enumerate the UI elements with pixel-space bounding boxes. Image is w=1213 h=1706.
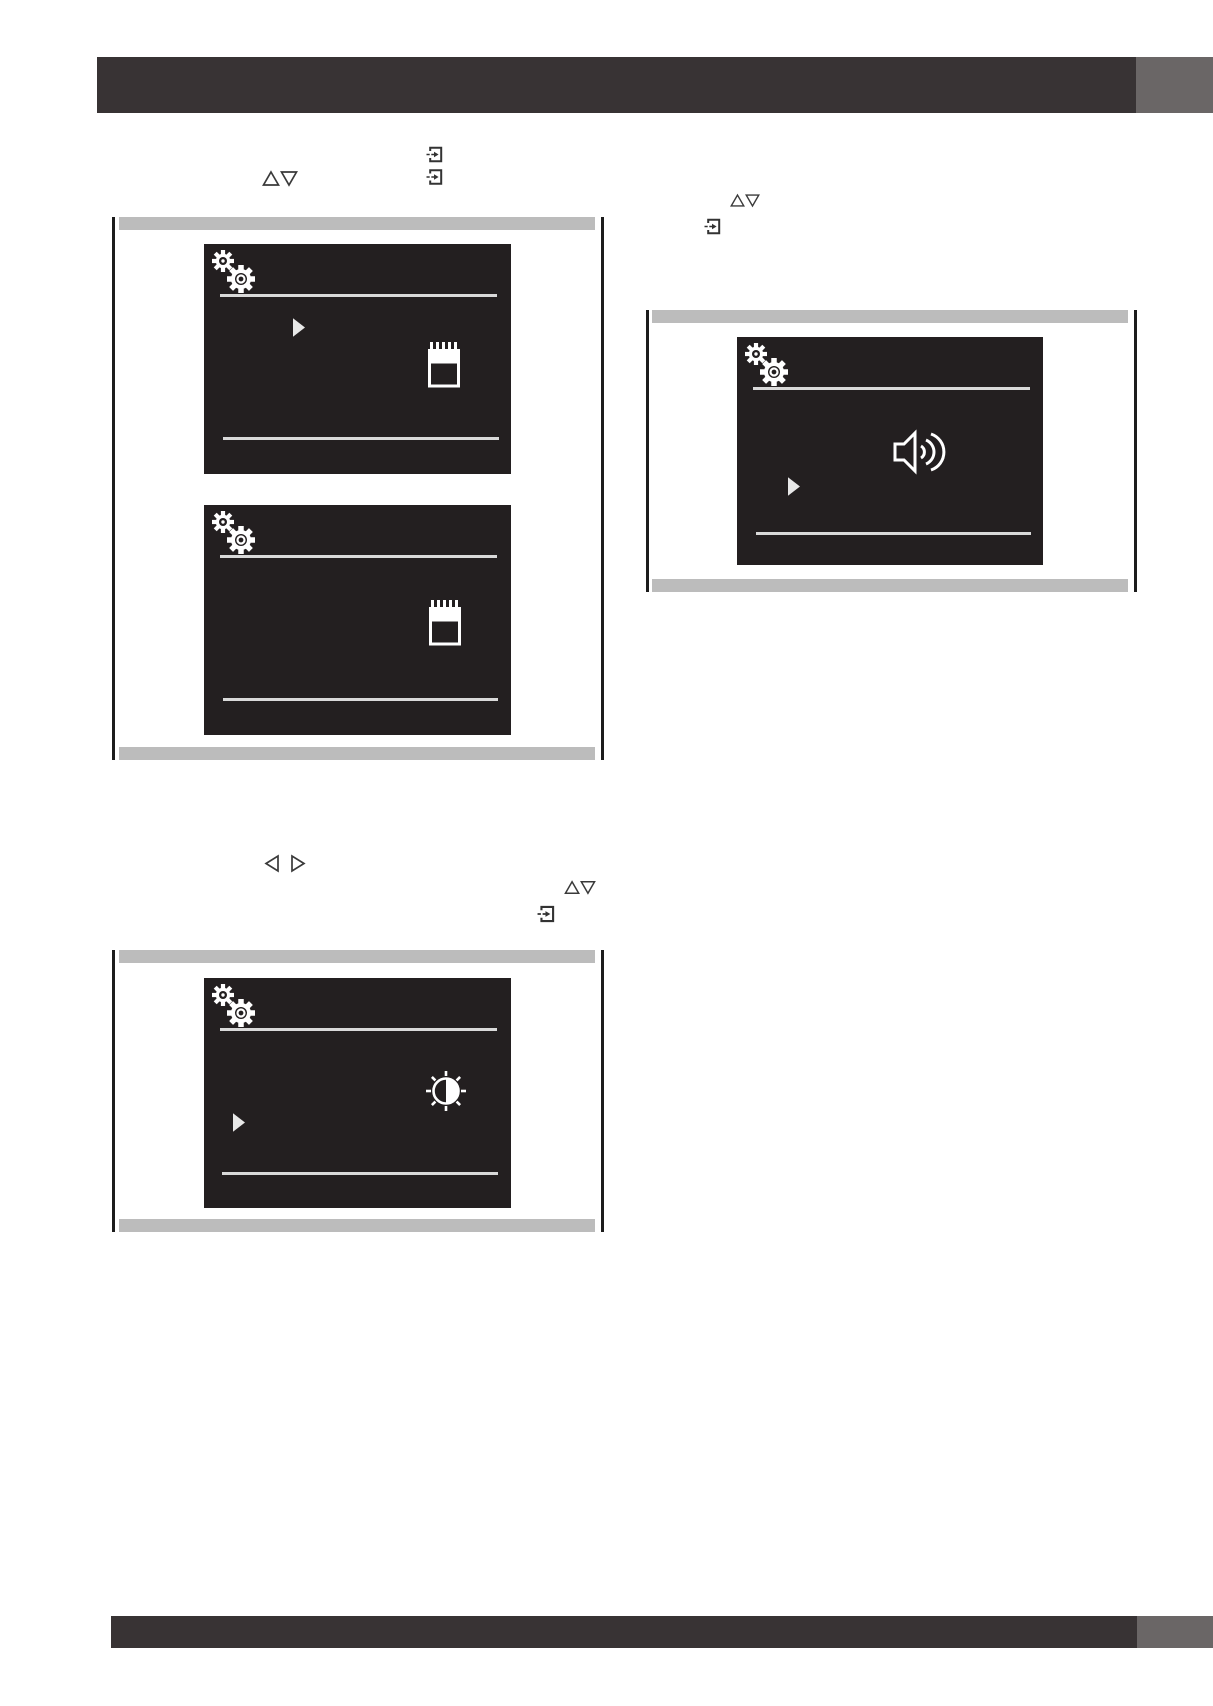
- screen-title-rule: [220, 294, 497, 297]
- figure-left-rule: [646, 310, 649, 592]
- figure-caption-bar: [119, 1219, 595, 1232]
- screen-title-rule: [220, 555, 497, 558]
- footer-corner-block: [1137, 1616, 1213, 1648]
- screen-settings-menu-with-cursor: [204, 244, 511, 474]
- figure-left-rule: [112, 217, 115, 760]
- figure-caption-bar: [119, 747, 595, 760]
- settings-gears-icon: [743, 342, 793, 390]
- screen-bottom-rule: [756, 532, 1031, 535]
- enter-key-icon: [426, 168, 443, 186]
- screen-settings-brightness: [204, 978, 511, 1208]
- footer-rule-bar: [111, 1616, 1137, 1648]
- up-down-arrows-icon: [262, 170, 298, 187]
- screen-title-rule: [753, 387, 1030, 390]
- figure-right-rule: [601, 217, 604, 760]
- figure-caption-bar: [652, 579, 1128, 592]
- figure-caption-bar: [119, 950, 595, 963]
- screen-settings-menu: [204, 505, 511, 735]
- figure-right-rule: [601, 950, 604, 1232]
- header-rule-bar: [97, 57, 1136, 113]
- figure-right-rule: [1134, 310, 1137, 592]
- settings-gears-icon: [210, 983, 260, 1031]
- figure-settings-date: [112, 217, 604, 760]
- screen-bottom-rule: [222, 1172, 498, 1175]
- header-corner-block: [1136, 57, 1213, 113]
- figure-left-rule: [112, 950, 115, 1232]
- settings-gears-icon: [210, 510, 260, 558]
- menu-cursor-icon: [788, 477, 800, 496]
- enter-key-icon: [426, 146, 443, 163]
- enter-key-icon: [704, 218, 721, 235]
- up-down-arrows-icon: [561, 880, 599, 895]
- manual-page: [0, 0, 1213, 1706]
- calendar-icon: [429, 600, 461, 646]
- screen-settings-sound: [737, 337, 1043, 565]
- screen-bottom-rule: [223, 437, 499, 440]
- figure-settings-sound: [646, 310, 1137, 592]
- figure-settings-brightness: [112, 950, 604, 1232]
- enter-key-icon: [536, 905, 556, 923]
- screen-bottom-rule: [223, 698, 498, 701]
- menu-cursor-icon: [293, 318, 305, 337]
- brightness-icon: [424, 1070, 468, 1112]
- left-right-arrows-icon: [263, 854, 307, 873]
- up-down-arrows-icon: [730, 193, 760, 208]
- calendar-icon: [428, 342, 460, 388]
- figure-caption-bar: [652, 310, 1128, 323]
- settings-gears-icon: [210, 249, 260, 297]
- figure-caption-bar: [119, 217, 595, 230]
- screen-title-rule: [220, 1028, 497, 1031]
- speaker-icon: [893, 428, 948, 476]
- menu-cursor-icon: [233, 1113, 245, 1132]
